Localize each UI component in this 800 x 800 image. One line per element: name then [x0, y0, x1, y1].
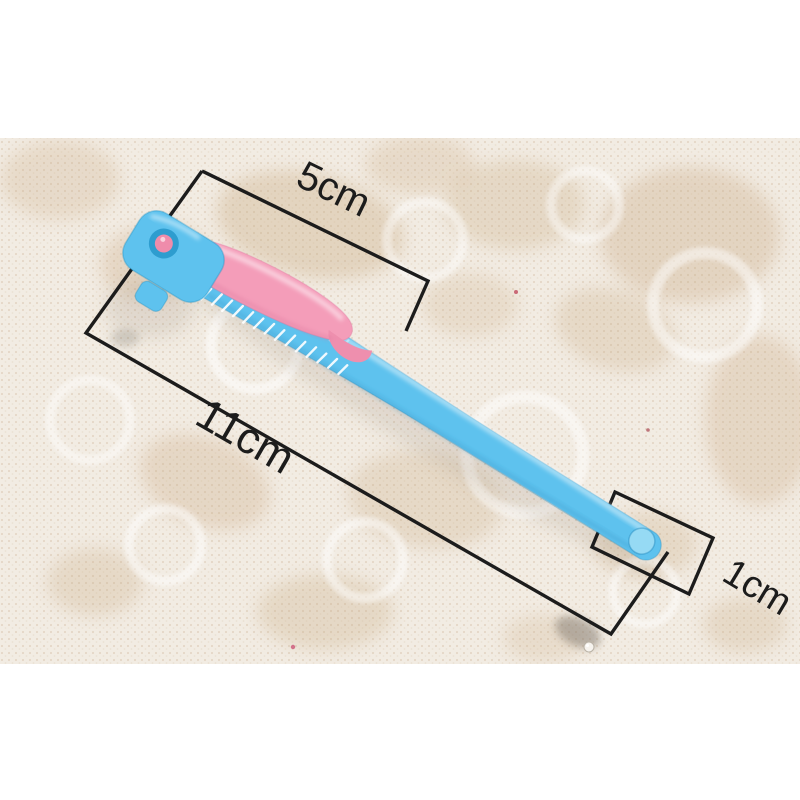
product-photo-canvas: 5cm 11cm 1cm [0, 0, 800, 800]
lace-fabric-background: 5cm 11cm 1cm [0, 135, 800, 664]
pearl-bead [584, 642, 594, 652]
product-photo: 5cm 11cm 1cm [0, 0, 800, 800]
